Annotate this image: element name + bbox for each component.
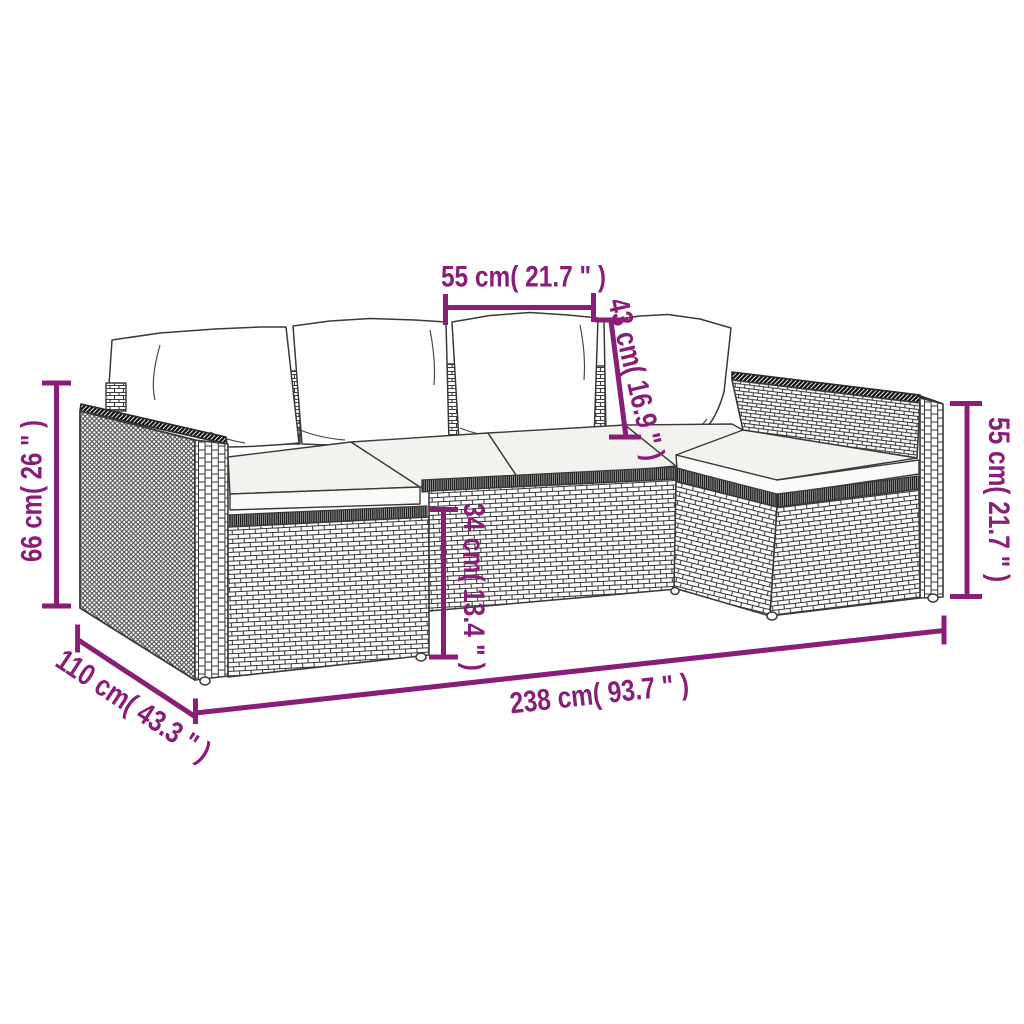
svg-text:66 cm( 26 " ): 66 cm( 26 " ) — [14, 420, 48, 562]
svg-text:34 cm( 13.4 " ): 34 cm( 13.4 " ) — [457, 503, 491, 671]
svg-text:55 cm( 21.7 " ): 55 cm( 21.7 " ) — [982, 417, 1016, 582]
svg-text:55 cm( 21.7 " ): 55 cm( 21.7 " ) — [441, 259, 606, 293]
